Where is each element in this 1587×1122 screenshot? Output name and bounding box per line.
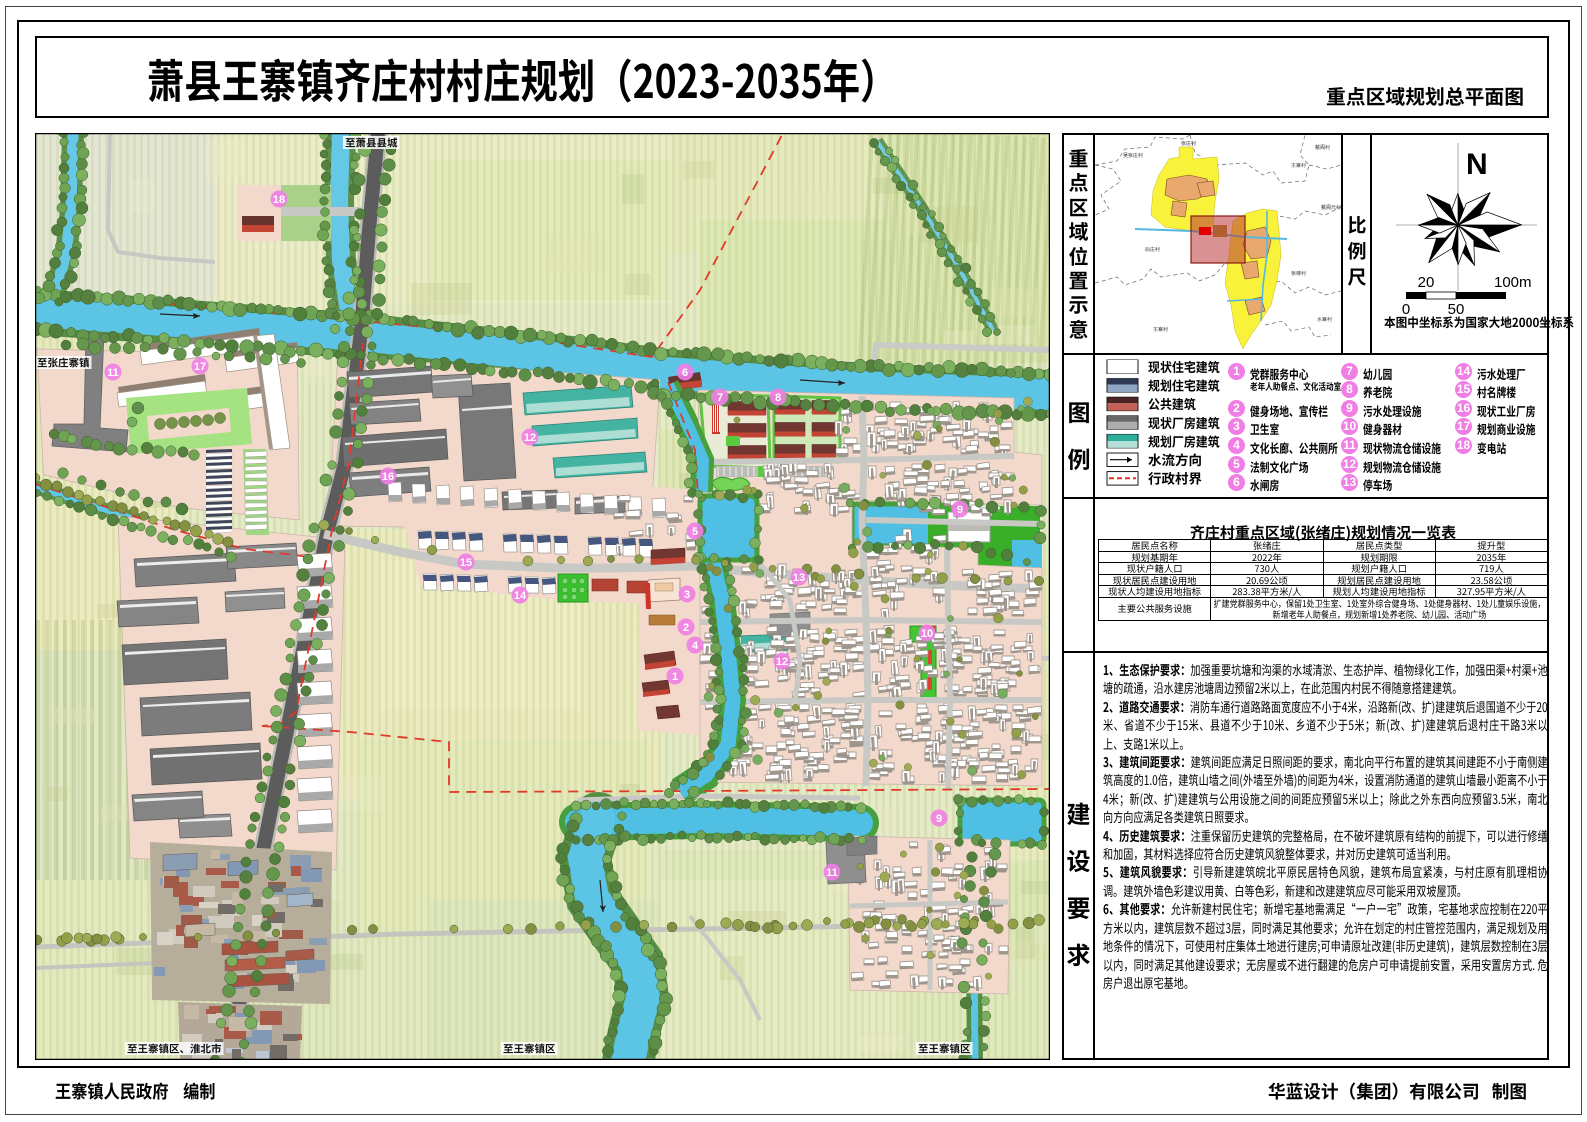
svg-text:4: 4 [692, 640, 699, 652]
svg-text:现状厂房建筑: 现状厂房建筑 [1148, 413, 1220, 432]
svg-text:100m: 100m [1494, 274, 1532, 291]
svg-text:水寨村: 水寨村 [1317, 316, 1332, 323]
svg-text:王寨村: 王寨村 [1153, 326, 1168, 333]
svg-text:8: 8 [775, 392, 781, 404]
svg-text:公共建筑: 公共建筑 [1148, 395, 1196, 414]
svg-text:13: 13 [793, 572, 805, 584]
svg-text:现状住宅建筑: 现状住宅建筑 [1148, 357, 1220, 376]
svg-text:11: 11 [826, 867, 838, 879]
svg-text:11: 11 [107, 367, 119, 379]
svg-text:15: 15 [460, 557, 472, 569]
svg-text:水流方向: 水流方向 [1148, 449, 1202, 469]
svg-text:戴阁村: 戴阁村 [1315, 144, 1330, 151]
svg-text:至王寨镇区、淮北市: 至王寨镇区、淮北市 [127, 1042, 222, 1057]
svg-text:3: 3 [684, 589, 690, 601]
svg-text:20: 20 [1418, 274, 1435, 291]
svg-text:5: 5 [692, 526, 698, 538]
svg-text:戴阁元村: 戴阁元村 [1321, 204, 1341, 211]
svg-text:6: 6 [682, 367, 688, 379]
svg-text:9: 9 [936, 813, 942, 825]
svg-text:1: 1 [672, 671, 678, 683]
svg-text:张庄村: 张庄村 [1181, 140, 1196, 147]
svg-text:17: 17 [194, 361, 206, 373]
svg-text:行政村界: 行政村界 [1148, 468, 1202, 488]
svg-text:10: 10 [921, 628, 933, 640]
svg-text:至王寨镇区: 至王寨镇区 [503, 1042, 556, 1057]
svg-text:至张庄寨镇: 至张庄寨镇 [37, 356, 90, 371]
svg-text:后庄村: 后庄村 [1145, 246, 1160, 253]
svg-text:16: 16 [382, 471, 394, 483]
svg-text:14: 14 [514, 590, 527, 602]
svg-text:王寨村: 王寨村 [1291, 162, 1306, 169]
svg-text:吴张庄村: 吴张庄村 [1123, 152, 1143, 159]
svg-text:9: 9 [957, 504, 963, 516]
svg-text:2: 2 [683, 622, 689, 634]
svg-text:规划住宅建筑: 规划住宅建筑 [1148, 376, 1220, 395]
svg-text:12: 12 [776, 656, 788, 668]
svg-text:张楼村: 张楼村 [1291, 270, 1306, 277]
svg-text:18: 18 [273, 194, 285, 206]
svg-text:7: 7 [717, 392, 723, 404]
svg-text:规划厂房建筑: 规划厂房建筑 [1148, 432, 1220, 451]
svg-text:至萧县县城: 至萧县县城 [345, 136, 398, 151]
svg-text:12: 12 [524, 432, 536, 444]
svg-text:至王寨镇区: 至王寨镇区 [918, 1042, 971, 1057]
